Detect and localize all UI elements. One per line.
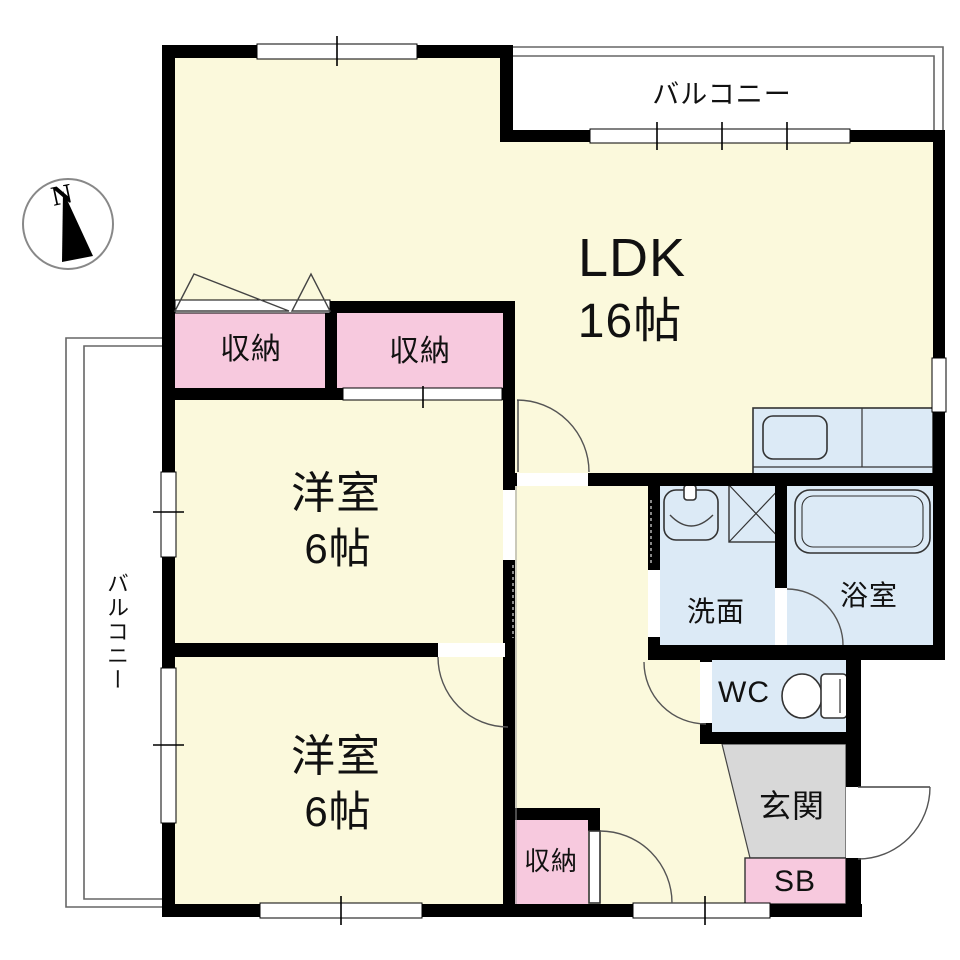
ldk-size-label: 16帖: [578, 298, 682, 346]
closet-hall-label: 収納: [524, 848, 578, 874]
door-gap-bedroom1: [503, 490, 515, 560]
wc-label: WC: [718, 678, 770, 708]
closet-ldk-label: 収納: [220, 335, 282, 365]
bedroom2-size-label: 6帖: [304, 791, 371, 833]
washroom-label: 洗面: [687, 598, 745, 626]
door-gap-bathroom: [775, 588, 787, 645]
closet-bedroom1-label: 収納: [389, 337, 451, 367]
window-ldk-east: [932, 358, 946, 412]
balcony-top-label: バルコニー: [652, 82, 791, 109]
wall-wc-south: [700, 732, 860, 744]
door-gap-washroom: [648, 570, 660, 637]
wall-hall-closet-top: [503, 808, 600, 820]
bedroom1-label: 洋室: [291, 472, 381, 516]
shoe-box-label: SB: [774, 867, 816, 897]
window-bottom-2: [633, 903, 770, 918]
toilet-tank: [821, 674, 847, 718]
window-bedroom1: [161, 472, 176, 557]
door-gap-front: [846, 787, 861, 858]
entrance-label: 玄関: [759, 790, 825, 822]
door-gap-ldk: [517, 473, 588, 486]
bathroom-label: 浴室: [840, 582, 898, 610]
bedroom2-label: 洋室: [291, 735, 381, 779]
kitchen-sink-icon: [763, 416, 827, 459]
compass-north-label: N: [49, 178, 75, 213]
wall-wet-south: [648, 645, 945, 660]
wall-closet-top: [330, 301, 513, 313]
balcony-left-label: バルコニー: [105, 572, 127, 692]
bedroom1-size-label: 6帖: [304, 528, 371, 570]
kitchen-counter: [753, 408, 933, 475]
bathtub-icon: [795, 490, 930, 553]
door-leaf-hall-closet: [589, 831, 600, 903]
floor-plan: N LDK 16帖 洋室 6帖 洋室 6帖 収納 収納 収納 洗面 浴室 WC …: [0, 0, 960, 960]
bathtub-outer: [795, 490, 930, 553]
washbasin-icon: [664, 485, 718, 540]
door-arc-front: [858, 787, 930, 859]
door-gap-bedroom2: [438, 643, 505, 657]
ldk-label: LDK: [578, 231, 686, 285]
washbasin-tap: [684, 485, 696, 500]
toilet-bowl: [782, 674, 822, 718]
toilet-icon: [782, 674, 847, 718]
wall-balcony-connector: [500, 45, 513, 142]
door-gap-wc: [700, 662, 712, 723]
compass: N: [23, 178, 113, 269]
sliding-door-balcony: [590, 129, 850, 143]
wall-closet-divider: [325, 301, 337, 400]
wall-hall-closet-stub: [588, 808, 600, 831]
